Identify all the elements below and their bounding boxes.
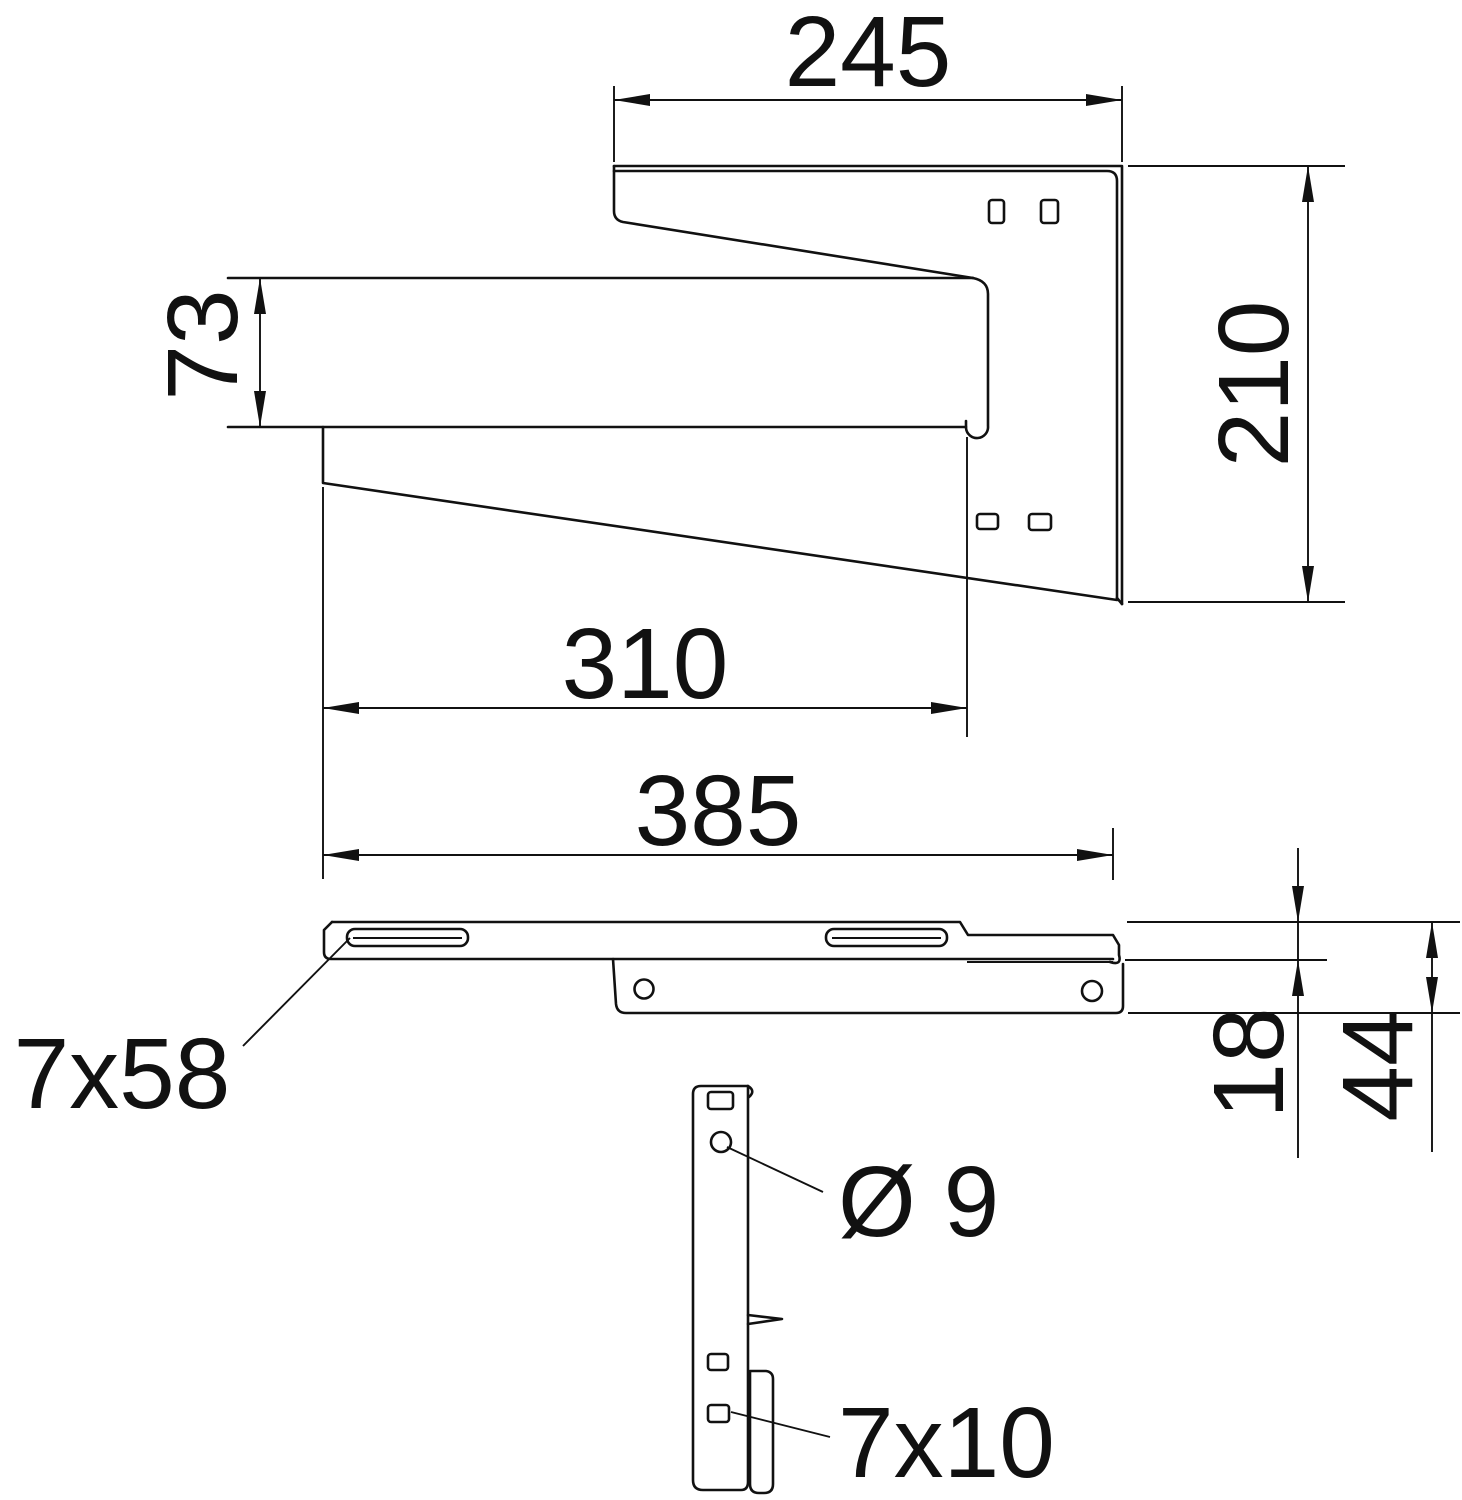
plate-hole-right xyxy=(1082,981,1102,1001)
arm-bottom-diagonal xyxy=(323,427,1117,600)
leader-7x10 xyxy=(731,1412,830,1437)
dim-73-label: 73 xyxy=(147,289,259,400)
dim-44-label: 44 xyxy=(1322,1010,1434,1121)
arrowhead xyxy=(1077,849,1113,861)
arrowhead xyxy=(931,702,967,714)
section-strip-outline xyxy=(693,1086,748,1490)
dim-7x10-label: 7x10 xyxy=(838,1387,1055,1499)
dim-7x58-label: 7x58 xyxy=(14,1018,231,1130)
dim-210-label: 210 xyxy=(1198,301,1310,468)
leader-dia9 xyxy=(727,1147,823,1192)
lip-and-diagonal xyxy=(614,166,973,278)
dim-18-44-ext-lines xyxy=(1125,922,1460,1013)
flange-inner-line xyxy=(614,171,1117,598)
upper-slot-hole-1 xyxy=(989,200,1004,223)
dim-18-label: 18 xyxy=(1193,1007,1305,1118)
upper-slot-hole-2 xyxy=(1041,200,1058,223)
arrowhead xyxy=(1292,886,1304,922)
arrowhead xyxy=(323,849,359,861)
section-second-strip xyxy=(750,1371,773,1493)
section-hole-bottom xyxy=(708,1405,729,1422)
connector-plate xyxy=(613,959,1123,1013)
rail-bottom-edge xyxy=(324,922,1113,959)
section-hole-top xyxy=(708,1092,733,1109)
dim-310-label: 310 xyxy=(562,608,729,720)
arrowhead xyxy=(323,702,359,714)
section-round-hole xyxy=(711,1132,731,1152)
leader-7x58 xyxy=(243,938,350,1046)
section-latch-tab xyxy=(748,1315,782,1324)
arrowhead xyxy=(1086,94,1122,106)
dim-385-label: 385 xyxy=(635,755,802,867)
lower-slot-hole-2 xyxy=(1029,514,1051,530)
dim-245-label: 245 xyxy=(785,0,952,108)
arrowhead xyxy=(1292,960,1304,996)
section-hole-mid xyxy=(708,1354,728,1370)
arrowhead xyxy=(1302,566,1314,602)
bracket-drawing: 245 210 73 310 385 7x58 18 44 Ø 9 7x10 xyxy=(0,0,1462,1500)
arrowhead xyxy=(614,94,650,106)
arrowhead xyxy=(1426,922,1438,958)
dim-dia9-label: Ø 9 xyxy=(838,1146,999,1258)
lower-slot-hole-1 xyxy=(977,514,998,529)
dimension-labels: 245 210 73 310 385 7x58 18 44 Ø 9 7x10 xyxy=(14,0,1434,1499)
arrowhead xyxy=(1302,166,1314,202)
bracket-bottom-view xyxy=(324,922,1123,1013)
drawing-canvas: 245 210 73 310 385 7x58 18 44 Ø 9 7x10 xyxy=(0,0,1462,1500)
rail-section-view xyxy=(693,1086,782,1493)
bracket-side-view xyxy=(228,166,1122,604)
arrowhead xyxy=(1426,977,1438,1013)
claw-hook xyxy=(966,278,988,438)
plate-hole-left xyxy=(635,980,654,999)
